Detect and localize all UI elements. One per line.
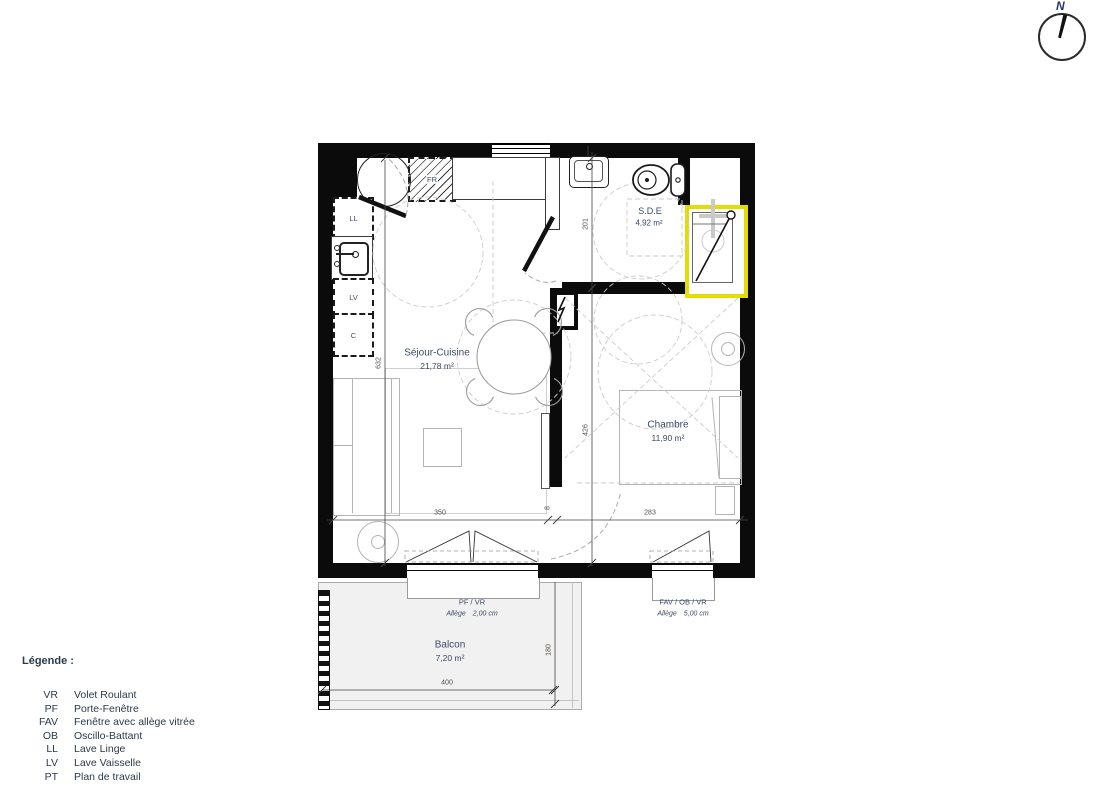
- floor-lamp-inner: [371, 535, 385, 549]
- dim-sde-depth: 201: [583, 218, 590, 230]
- legend-row: VRVolet Roulant: [22, 689, 195, 703]
- window-fav-label: FAV / OB / VR: [659, 598, 706, 607]
- electrical-panel-icon: [556, 294, 575, 327]
- balcony-inner-line: [572, 582, 573, 708]
- sofa: [333, 378, 400, 516]
- legend-row: PTPlan de travail: [22, 771, 195, 785]
- legend: Légende : VRVolet Roulant PFPorte-Fenêtr…: [22, 655, 195, 784]
- sofa-line: [334, 445, 352, 446]
- dim-balcon-depth: 180: [546, 644, 553, 656]
- shower-icon: [685, 205, 748, 298]
- wall-segment: [713, 563, 755, 578]
- dim-chambre-depth: 426: [583, 424, 590, 436]
- worktop-strip: [545, 157, 560, 230]
- dishwasher-label: LV: [348, 293, 359, 302]
- bedside-stool-inner: [721, 342, 735, 356]
- legend-row: OBOscillo-Battant: [22, 730, 195, 744]
- wall-segment: [550, 330, 562, 487]
- kitchen-sink-icon: [331, 236, 373, 280]
- rug: [385, 368, 547, 514]
- legend-row: FAVFenêtre avec allège vitrée: [22, 716, 195, 730]
- bedroom-door-leaf: [541, 413, 550, 489]
- window-pf-threshold: [407, 578, 540, 599]
- bed-pillow: [719, 396, 741, 479]
- dim-wall: 8: [545, 506, 552, 510]
- entrance-door-swing: [357, 153, 411, 207]
- room-name-sde: S.D.E: [638, 206, 662, 216]
- balcony-separator: [318, 590, 330, 710]
- balcony-inner-line: [319, 700, 579, 701]
- north-label: N: [1056, 0, 1065, 13]
- window-fav-allege: Allège5,00 cm: [657, 611, 708, 618]
- room-name-sejour: Séjour-Cuisine: [404, 348, 470, 359]
- wall-segment: [538, 563, 652, 578]
- fridge-box: FR: [408, 157, 456, 202]
- floor-plan-page: N FR LL LV C: [0, 0, 1101, 800]
- fridge-label: FR: [426, 175, 438, 184]
- nightstand: [715, 486, 735, 515]
- wall-segment: [318, 563, 407, 578]
- window-pf-allege: Allège2,00 cm: [446, 611, 497, 618]
- closet-label: C: [350, 331, 357, 340]
- legend-title: Légende :: [22, 655, 195, 667]
- washbasin-icon: [569, 156, 609, 188]
- dishwasher-box: LV: [333, 278, 374, 317]
- room-area-chambre: 11,90 m²: [652, 433, 685, 443]
- room-name-chambre: Chambre: [647, 420, 688, 431]
- washbasin-faucet: [587, 146, 589, 157]
- dim-balcon-width: 400: [441, 680, 453, 687]
- window-swings: [405, 531, 713, 562]
- coffee-table: [423, 428, 462, 467]
- closet-box: C: [333, 313, 374, 357]
- room-name-balcon: Balcon: [435, 640, 466, 651]
- legend-row: LLLave Linge: [22, 743, 195, 757]
- room-area-sejour: 21,78 m²: [420, 361, 454, 371]
- legend-row: PFPorte-Fenêtre: [22, 703, 195, 717]
- wall-segment: [318, 143, 333, 578]
- dim-chambre-width: 283: [644, 510, 656, 517]
- room-area-balcon: 7,20 m²: [436, 653, 465, 663]
- wall-segment: [678, 143, 690, 205]
- washer-box: LL: [333, 197, 374, 240]
- window-pf-label: PF / VR: [459, 598, 485, 607]
- sofa-line: [352, 379, 353, 513]
- room-area-sde: 4,92 m²: [635, 219, 662, 228]
- north-compass-icon: [1038, 13, 1086, 61]
- legend-row: LVLave Vaisselle: [22, 757, 195, 771]
- dim-total-depth: 632: [376, 357, 383, 369]
- washer-label: LL: [348, 214, 358, 223]
- sofa-line: [391, 379, 392, 513]
- dim-sejour-width: 350: [434, 510, 446, 517]
- worktop-counter: [452, 157, 547, 200]
